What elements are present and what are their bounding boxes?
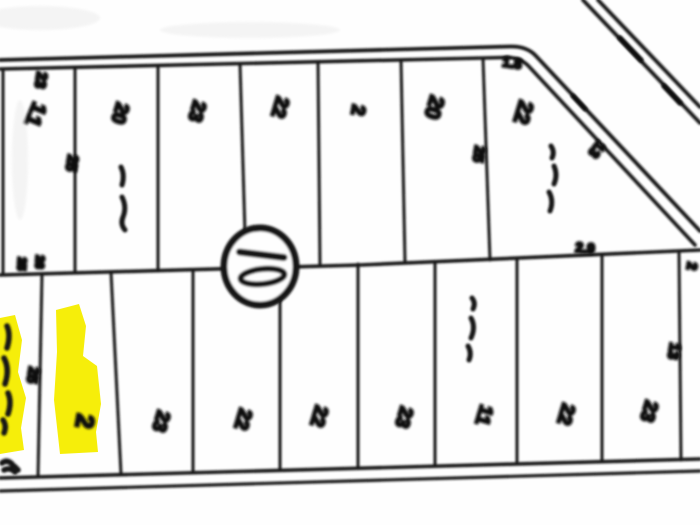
svg-text:2.9: 2.9 xyxy=(575,239,596,257)
svg-text:1.8: 1.8 xyxy=(501,53,523,72)
svg-text:25: 25 xyxy=(62,153,82,172)
svg-text:25: 25 xyxy=(14,257,29,272)
svg-text:25: 25 xyxy=(469,144,489,163)
svg-text:26: 26 xyxy=(32,255,47,270)
svg-text:23: 23 xyxy=(31,70,51,89)
svg-text:13: 13 xyxy=(664,341,684,360)
svg-text:25: 25 xyxy=(23,365,43,384)
